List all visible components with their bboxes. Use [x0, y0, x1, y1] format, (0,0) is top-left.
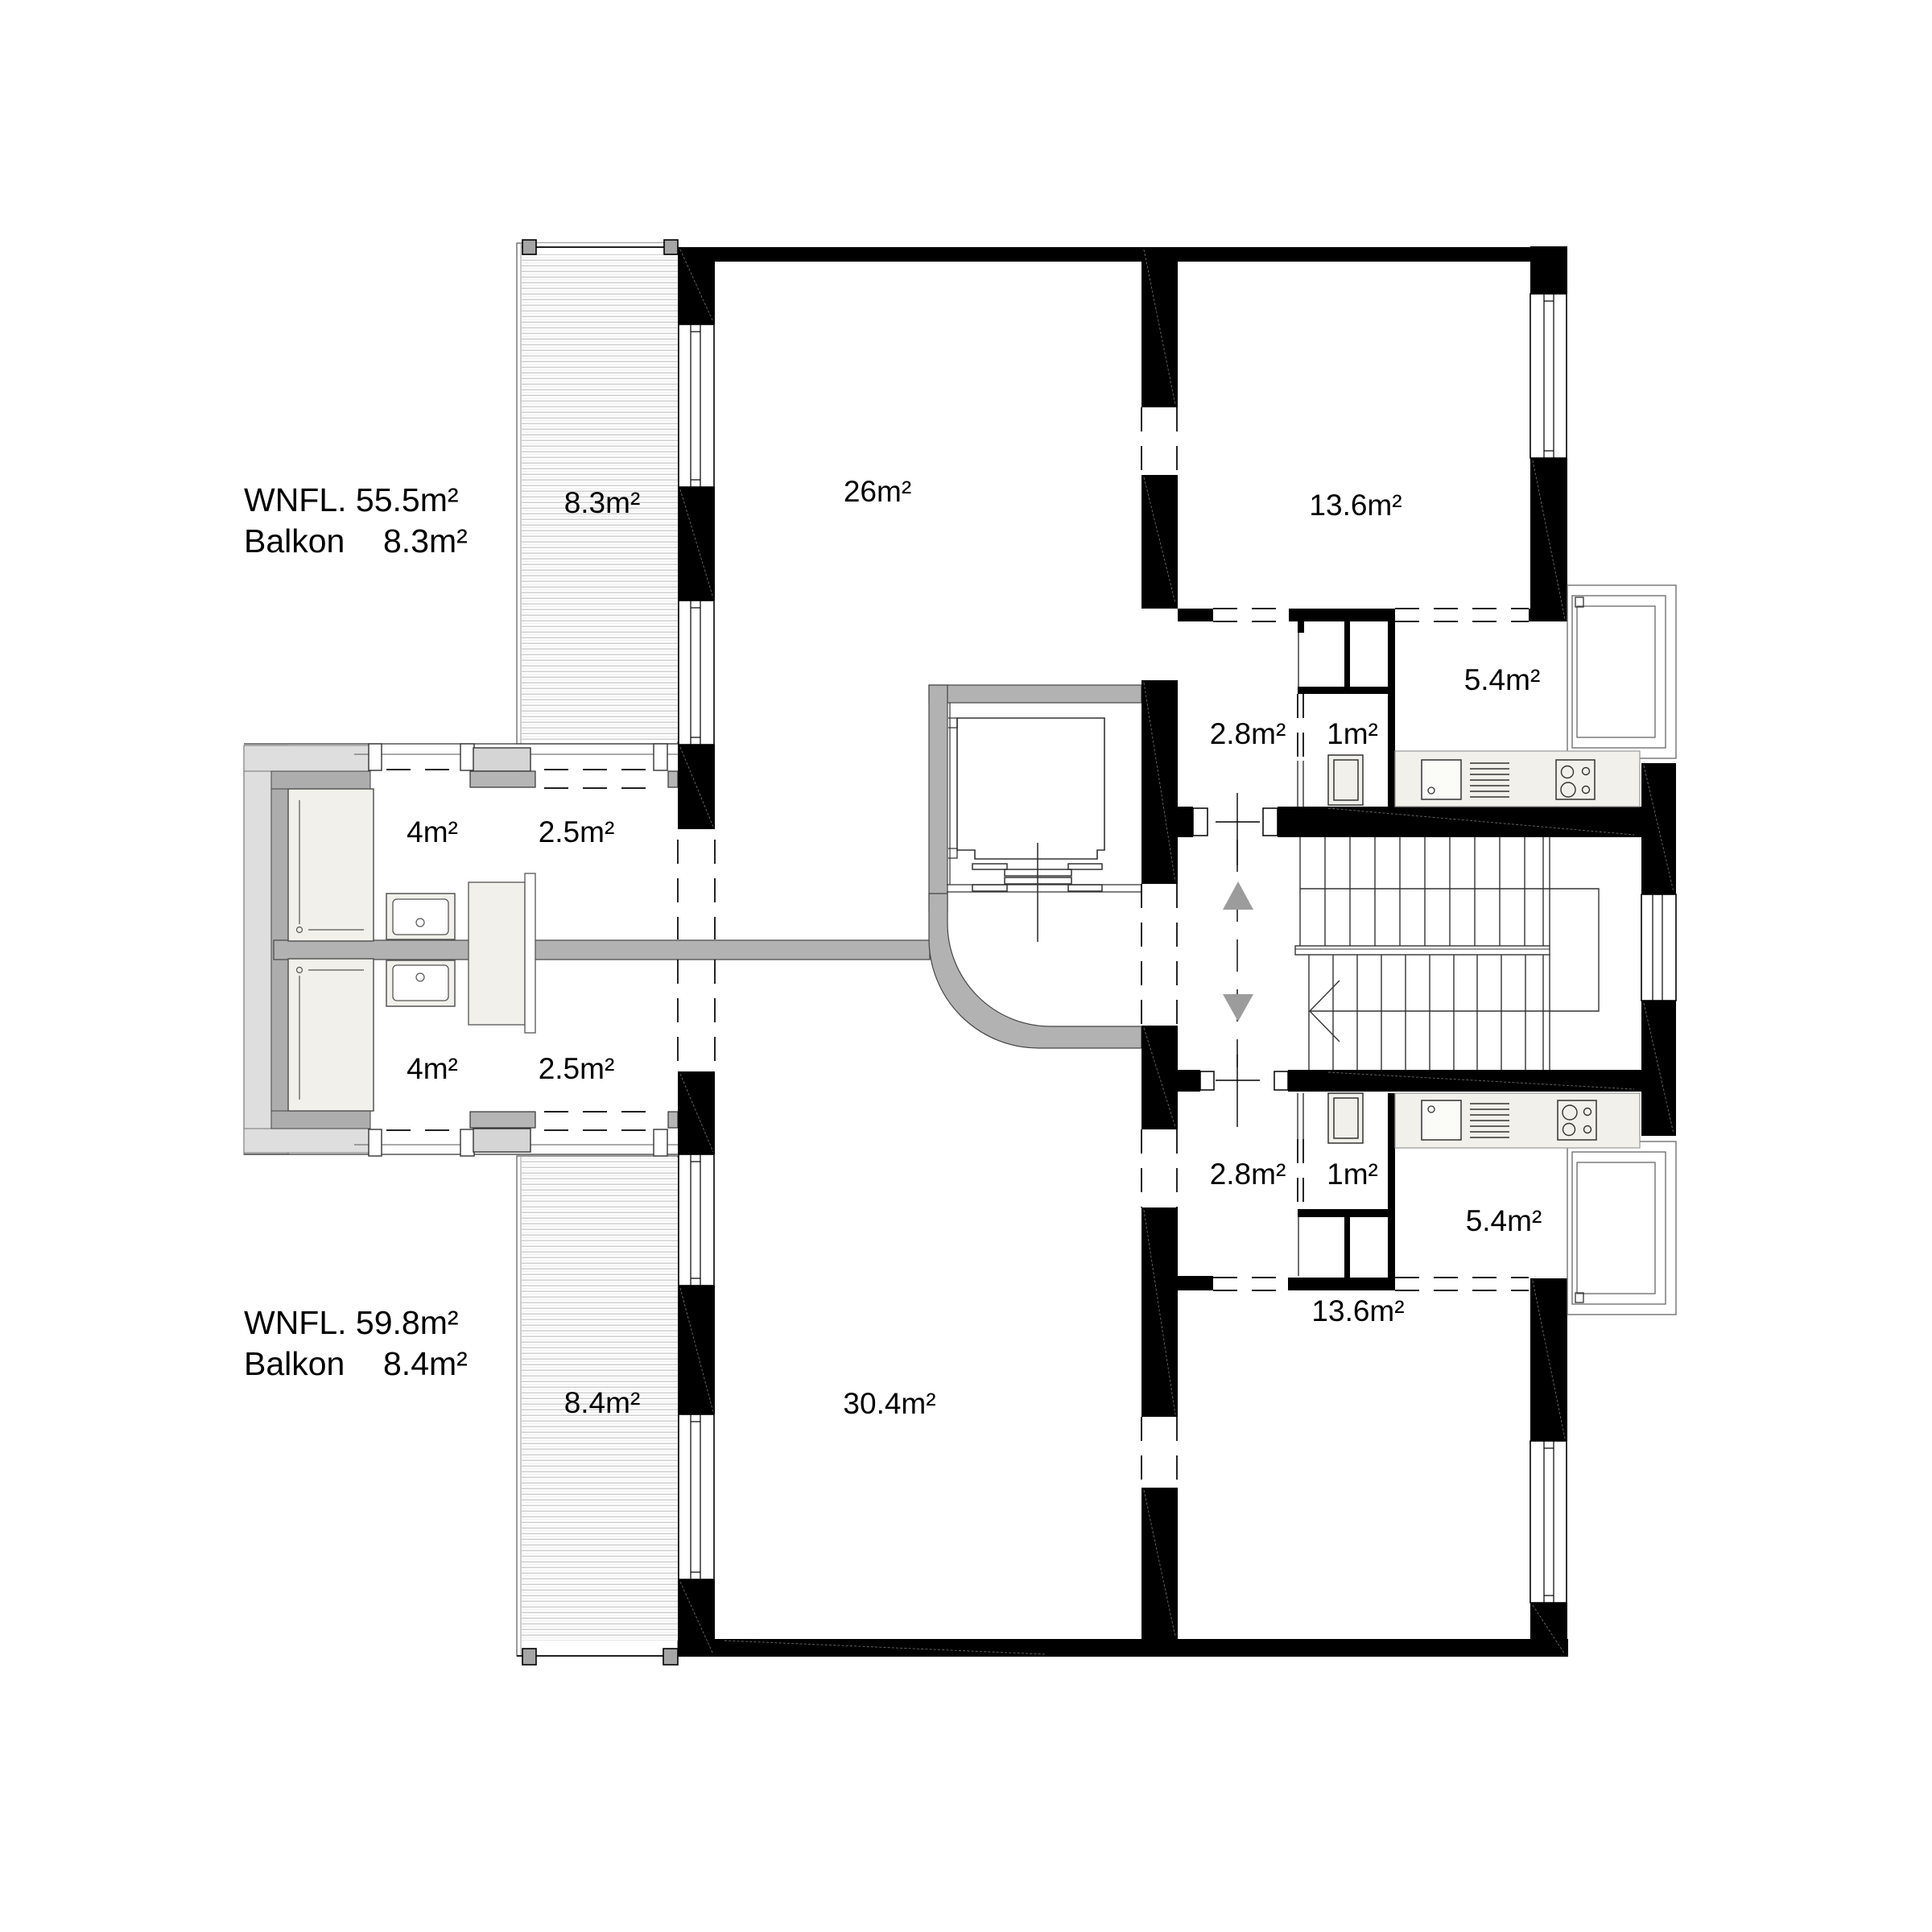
svg-text:26m²: 26m²: [844, 475, 911, 508]
svg-text:WNFL. 59.8m²: WNFL. 59.8m²: [244, 1304, 459, 1341]
svg-text:4m²: 4m²: [407, 815, 458, 848]
svg-text:Balkon: Balkon: [244, 522, 345, 559]
svg-text:13.6m²: 13.6m²: [1309, 489, 1402, 522]
svg-text:Balkon: Balkon: [244, 1345, 345, 1382]
svg-text:8.3m²: 8.3m²: [564, 486, 641, 519]
svg-text:2.8m²: 2.8m²: [1210, 717, 1286, 750]
svg-text:1m²: 1m²: [1327, 717, 1378, 750]
svg-text:4m²: 4m²: [407, 1052, 458, 1085]
svg-text:2.5m²: 2.5m²: [539, 1052, 615, 1085]
svg-text:8.3m²: 8.3m²: [383, 522, 468, 559]
svg-text:5.4m²: 5.4m²: [1466, 1204, 1542, 1237]
svg-text:13.6m²: 13.6m²: [1311, 1294, 1404, 1327]
svg-text:WNFL. 55.5m²: WNFL. 55.5m²: [244, 481, 459, 518]
svg-text:30.4m²: 30.4m²: [843, 1387, 935, 1420]
svg-text:2.8m²: 2.8m²: [1210, 1158, 1286, 1191]
svg-text:5.4m²: 5.4m²: [1464, 663, 1541, 696]
svg-text:2.5m²: 2.5m²: [539, 815, 615, 848]
svg-text:8.4m²: 8.4m²: [564, 1386, 641, 1419]
svg-text:1m²: 1m²: [1327, 1158, 1378, 1191]
svg-text:8.4m²: 8.4m²: [383, 1345, 468, 1382]
